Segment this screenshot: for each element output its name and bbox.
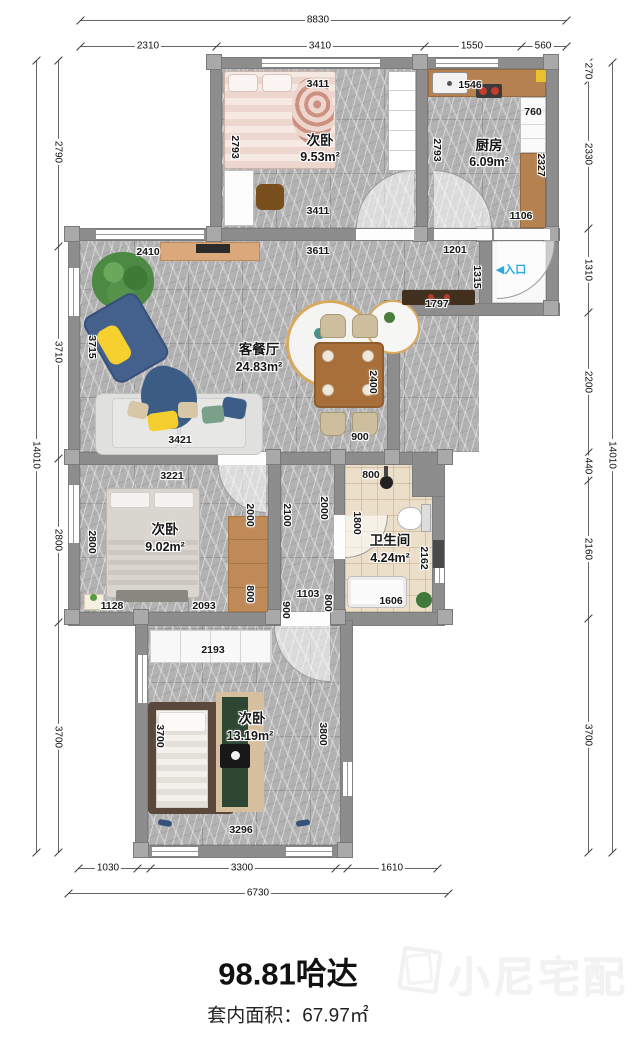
dim-bed1-bottom: 3411	[307, 205, 330, 217]
dim-top-total: 8830	[305, 15, 331, 26]
room-area-kitchen: 6.09m²	[469, 155, 509, 169]
dim-living-3611: 3611	[307, 245, 330, 257]
dim-hall-2000: 2000	[318, 496, 330, 519]
shower-head	[380, 476, 393, 489]
plan-title: 98.81哈达	[218, 949, 358, 994]
pillow	[262, 74, 292, 92]
dim-hall-800: 800	[322, 594, 334, 612]
dim-right-2: 2330	[583, 141, 594, 167]
dim-kitchen-bottom: 1106	[510, 210, 533, 222]
door-opening	[334, 515, 345, 559]
dim-bed2-top: 3221	[160, 470, 183, 482]
toilet-tank	[421, 504, 431, 532]
plate	[322, 350, 334, 362]
dim-hall-1103: 1103	[297, 588, 320, 600]
room-name-bed1: 次卧	[307, 129, 334, 149]
room-name-kitchen: 厨房	[476, 134, 503, 154]
wall-corner	[437, 609, 453, 625]
bed-bench	[116, 590, 188, 602]
nightstand-plant	[90, 594, 97, 601]
dim-top-3: 1550	[459, 41, 485, 52]
dim-living-2410: 2410	[136, 246, 159, 258]
dim-right-6: 2160	[583, 536, 594, 562]
room-area-bath: 4.24m²	[370, 551, 410, 565]
dim-living-2400: 2400	[367, 370, 379, 393]
window	[436, 58, 498, 68]
pillow	[178, 402, 198, 418]
dim-left-3: 2800	[53, 527, 64, 553]
tv	[196, 244, 230, 253]
wall-corner	[265, 449, 281, 465]
dim-bed2-left: 2800	[86, 530, 98, 553]
watermark-logo	[397, 945, 443, 994]
wall-corner	[206, 54, 222, 70]
wall-corner	[437, 449, 453, 465]
wall	[416, 57, 428, 241]
dim-top-2: 3410	[307, 41, 333, 52]
watermark-text: 小尼宅配	[448, 944, 628, 1005]
window	[152, 846, 198, 857]
window	[286, 846, 332, 857]
dim-hall-900: 900	[280, 601, 292, 619]
dining-chair	[320, 412, 346, 436]
shower-arm	[384, 466, 388, 476]
dim-living-3715: 3715	[86, 335, 98, 358]
dim-bed2-800: 800	[244, 585, 256, 603]
room-area-living: 24.83m²	[236, 360, 283, 374]
dim-right-total: 14010	[607, 439, 618, 471]
dim-bed3-3700: 3700	[154, 724, 166, 747]
room-name-bed3: 次卧	[239, 707, 266, 727]
wall-corner	[543, 300, 559, 316]
wall-corner	[64, 449, 80, 465]
entry-text: 入口	[504, 264, 526, 276]
dim-bath-1606: 1606	[379, 595, 402, 607]
dining-chair	[352, 314, 378, 338]
dim-bed1-top: 3411	[307, 78, 330, 90]
door-opening	[356, 229, 414, 240]
wall-corner	[412, 226, 428, 242]
dim-kitchen-top: 1546	[458, 79, 481, 91]
dim-kitchen-760: 760	[524, 106, 542, 118]
dim-bed2-2093: 2093	[192, 600, 215, 612]
dim-top-1: 2310	[135, 41, 161, 52]
door-opening	[434, 229, 492, 240]
dim-top-4: 560	[533, 41, 554, 52]
dim-bottom-1: 1030	[95, 863, 121, 874]
door-opening	[494, 229, 550, 240]
dim-bath-1800: 1800	[351, 511, 363, 534]
window	[262, 58, 380, 68]
room-name-living: 客餐厅	[239, 338, 280, 358]
wall	[135, 612, 148, 858]
dim-left-2: 3710	[53, 339, 64, 365]
dim-bed3-3296: 3296	[229, 824, 252, 836]
wall	[268, 452, 281, 625]
dim-bed3-2193: 2193	[201, 644, 224, 656]
floor-plan: 8830 2310 3410 1550 560 14010 2790 3710 …	[0, 0, 640, 1059]
dim-left-total: 14010	[31, 439, 42, 471]
dim-hall-2100: 2100	[281, 503, 293, 526]
entry-label: ◀入口	[496, 261, 526, 277]
plan-area-line: 套内面积：67.97㎡	[207, 1001, 369, 1028]
wardrobe	[388, 71, 416, 171]
dim-living-1201: 1201	[443, 244, 466, 256]
pillow	[220, 396, 247, 420]
bath-plant	[416, 592, 432, 608]
pot	[491, 87, 499, 95]
window	[68, 268, 80, 316]
dim-right-1: 270	[583, 61, 594, 82]
wall	[546, 57, 559, 316]
dim-bottom-total: 6730	[245, 888, 271, 899]
wall-corner	[330, 449, 346, 465]
room-name-bath: 卫生间	[370, 529, 411, 549]
wall-corner	[543, 54, 559, 70]
wardrobe-knob	[231, 751, 240, 760]
table-plant	[384, 312, 395, 323]
chair	[256, 184, 284, 210]
room-name-bed2: 次卧	[152, 518, 179, 538]
pillow	[228, 74, 258, 92]
wall-corner	[133, 609, 149, 625]
toilet	[397, 507, 422, 530]
dim-bed3-3800: 3800	[317, 722, 329, 745]
wall-corner	[206, 226, 222, 242]
plate	[362, 350, 374, 362]
dim-kitchen-left: 2793	[431, 138, 443, 161]
window	[68, 485, 80, 543]
dim-right-4: 2200	[583, 369, 594, 395]
kitchen-item	[536, 70, 546, 82]
dim-living-1315: 1315	[471, 265, 483, 288]
wall	[210, 57, 222, 241]
dim-kitchen-right: 2327	[535, 153, 547, 176]
dim-bath-800: 800	[362, 469, 380, 481]
sink-drain	[447, 81, 452, 86]
room-area-bed3: 13.19m²	[227, 729, 274, 743]
room-area-bed1: 9.53m²	[300, 150, 340, 164]
wall-corner	[133, 842, 149, 858]
room-area-bed2: 9.02m²	[145, 540, 185, 554]
wall-corner	[412, 54, 428, 70]
bath-vanity	[433, 540, 444, 568]
dim-living-3421: 3421	[168, 434, 191, 446]
dim-bed2-1128: 1128	[101, 600, 124, 612]
window	[342, 762, 353, 796]
pillow	[154, 492, 194, 508]
dim-right-7: 3700	[583, 722, 594, 748]
pillow	[110, 492, 150, 508]
dim-bottom-2: 3300	[229, 863, 255, 874]
dim-bed1-left: 2793	[229, 135, 241, 158]
dining-chair	[320, 314, 346, 338]
dim-left-4: 3700	[53, 724, 64, 750]
wall	[68, 612, 445, 626]
dim-living-1797: 1797	[425, 298, 448, 310]
dim-right-3: 1310	[583, 257, 594, 283]
wall-corner	[64, 609, 80, 625]
dim-bath-2162: 2162	[418, 546, 430, 569]
wall-corner	[337, 842, 353, 858]
wall	[340, 620, 353, 858]
dim-left-1: 2790	[53, 139, 64, 165]
desk	[224, 170, 254, 226]
dim-right-5: 440	[583, 456, 594, 477]
dim-living-900: 900	[351, 431, 369, 443]
dim-bed2-2000: 2000	[244, 503, 256, 526]
dim-bottom-3: 1610	[379, 863, 405, 874]
wall-corner	[64, 226, 80, 242]
window	[137, 655, 148, 703]
pillow	[201, 405, 225, 424]
plate	[322, 384, 334, 396]
window	[96, 229, 204, 240]
wall-corner	[384, 449, 400, 465]
